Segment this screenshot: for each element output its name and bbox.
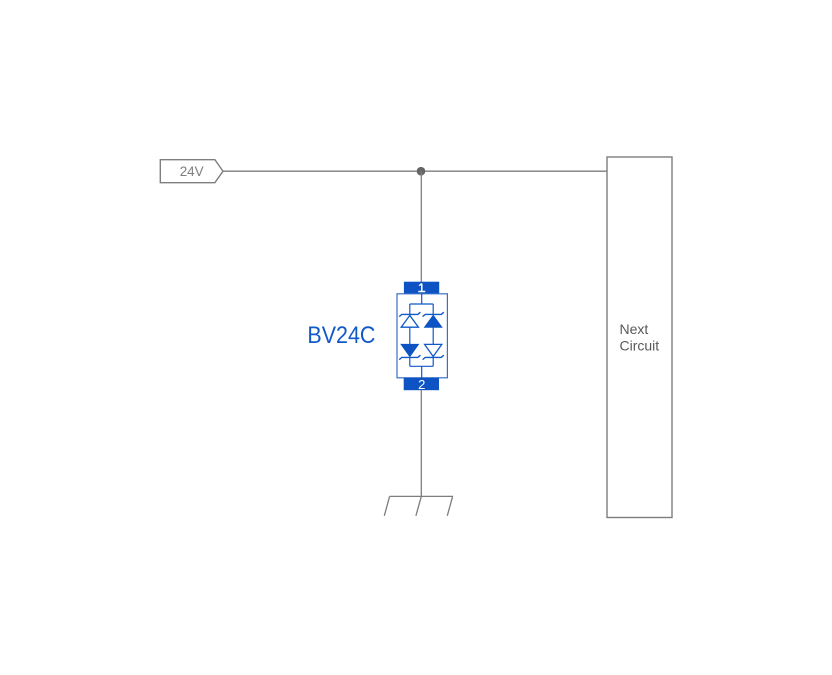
svg-text:24V: 24V: [180, 163, 205, 179]
svg-text:Next: Next: [620, 321, 649, 337]
svg-text:BV24C: BV24C: [307, 322, 375, 349]
svg-text:2: 2: [418, 377, 425, 392]
svg-text:Circuit: Circuit: [620, 338, 660, 354]
